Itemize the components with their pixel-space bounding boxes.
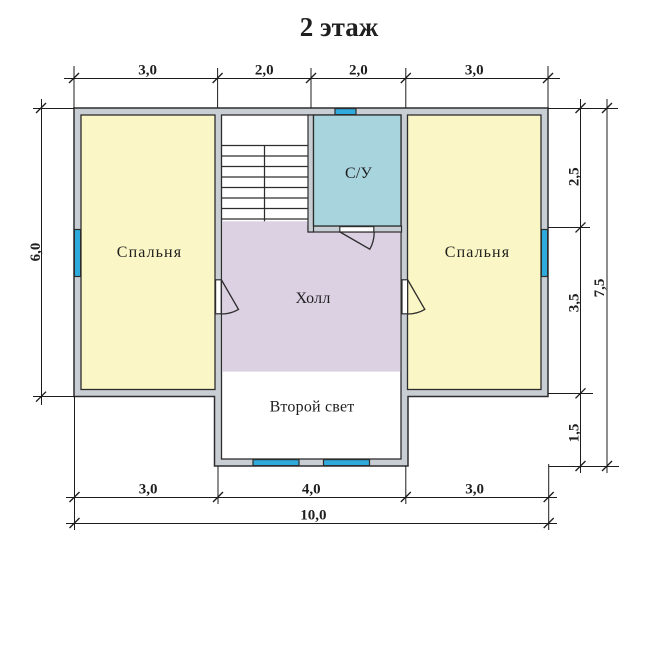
svg-text:4,0: 4,0	[302, 482, 321, 498]
svg-text:2 этаж: 2 этаж	[300, 12, 379, 42]
svg-text:Холл: Холл	[295, 290, 330, 307]
svg-text:2,0: 2,0	[255, 63, 274, 79]
svg-text:10,0: 10,0	[300, 508, 326, 524]
svg-text:3,0: 3,0	[139, 482, 158, 498]
svg-text:С/У: С/У	[345, 165, 373, 182]
svg-text:3,5: 3,5	[567, 294, 583, 313]
svg-text:6,0: 6,0	[28, 243, 44, 262]
svg-text:1,5: 1,5	[567, 424, 583, 443]
svg-text:3,0: 3,0	[138, 63, 157, 79]
svg-text:2,5: 2,5	[567, 167, 583, 186]
svg-text:3,0: 3,0	[465, 63, 484, 79]
svg-text:3,0: 3,0	[465, 482, 484, 498]
svg-text:7,5: 7,5	[592, 279, 608, 298]
svg-text:Второй свет: Второй свет	[270, 399, 355, 416]
svg-text:2,0: 2,0	[349, 63, 368, 79]
svg-text:Спальня: Спальня	[445, 244, 510, 261]
svg-text:Спальня: Спальня	[117, 244, 182, 261]
